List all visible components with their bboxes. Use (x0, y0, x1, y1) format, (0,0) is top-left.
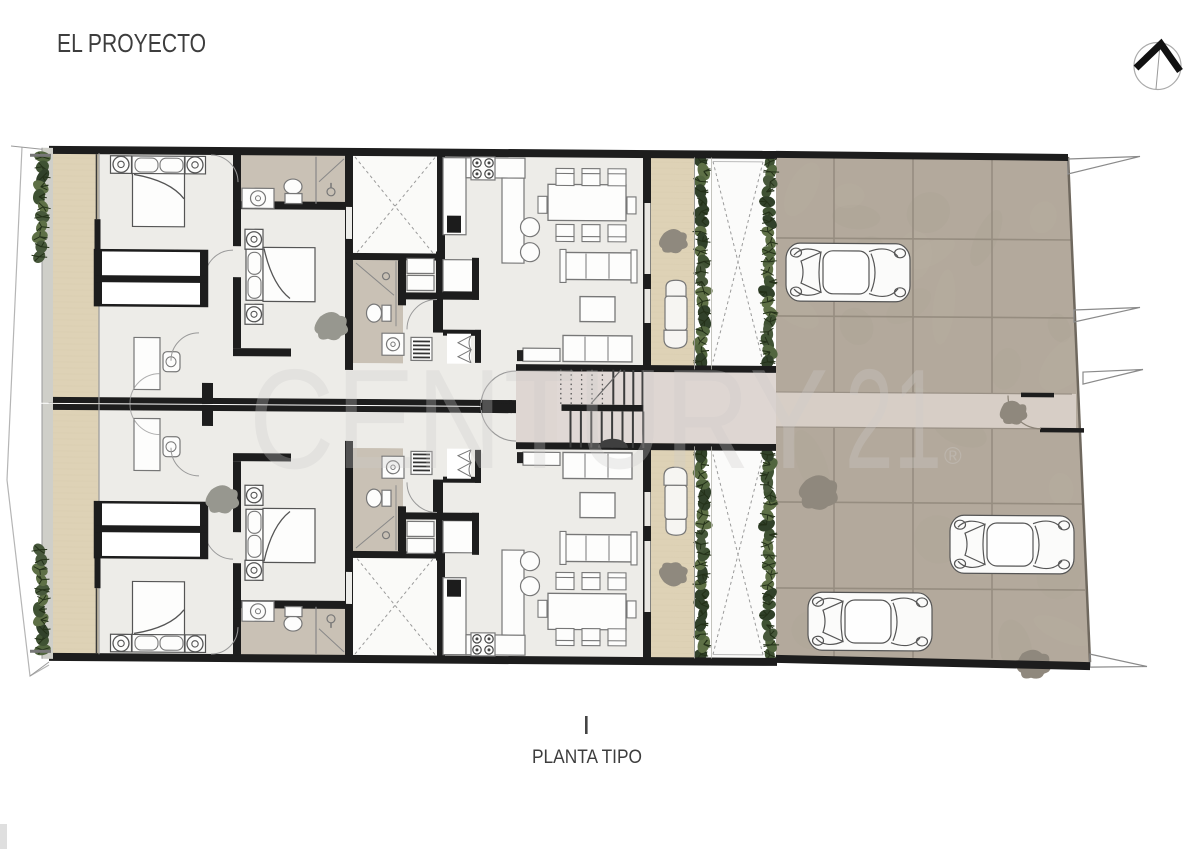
svg-text:EL PROYECTO: EL PROYECTO (57, 28, 206, 58)
svg-text:CENTURY: CENTURY (249, 340, 830, 499)
svg-text:®: ® (944, 443, 962, 470)
svg-text:21: 21 (845, 340, 942, 499)
svg-text:PLANTA TIPO: PLANTA TIPO (532, 746, 642, 768)
